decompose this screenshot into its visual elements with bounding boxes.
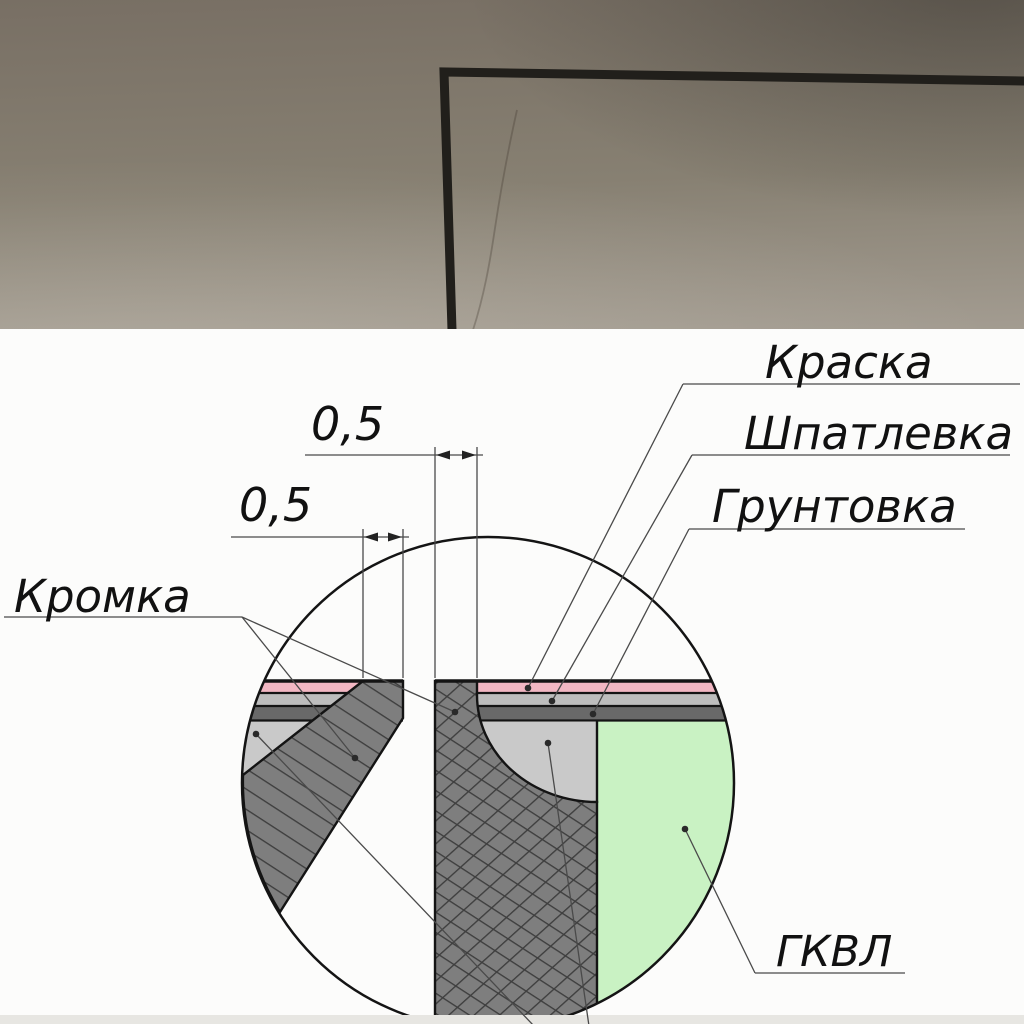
label-primer: Грунтовка <box>712 480 957 533</box>
leader-dot <box>590 711 597 718</box>
dimension-top-value: 0,5 <box>311 397 384 451</box>
leader-dot <box>549 698 556 705</box>
label-edge: Кромка <box>14 570 191 623</box>
leader-dot <box>525 685 532 692</box>
leader-dot <box>545 740 552 747</box>
label-board: ГКВЛ <box>776 927 892 977</box>
leader-dot <box>253 731 260 738</box>
marked-corner-line <box>444 72 1024 330</box>
label-putty: Шпатлевка <box>744 407 1013 460</box>
leader-dot <box>452 709 459 716</box>
primer-layer-right <box>477 706 740 721</box>
ceiling-crack <box>473 110 517 330</box>
label-paint: Краска <box>765 336 933 389</box>
putty-layer-right <box>477 693 740 706</box>
leader-dot <box>352 755 359 762</box>
bottom-strip <box>0 1015 1024 1024</box>
technical-drawing: 0,5 0,5 Кромка Краска <box>0 0 1024 1024</box>
dimension-bottom-value: 0,5 <box>239 478 312 532</box>
screenshot: 0,5 0,5 Кромка Краска <box>0 0 1024 1024</box>
leader-dot <box>682 826 689 833</box>
